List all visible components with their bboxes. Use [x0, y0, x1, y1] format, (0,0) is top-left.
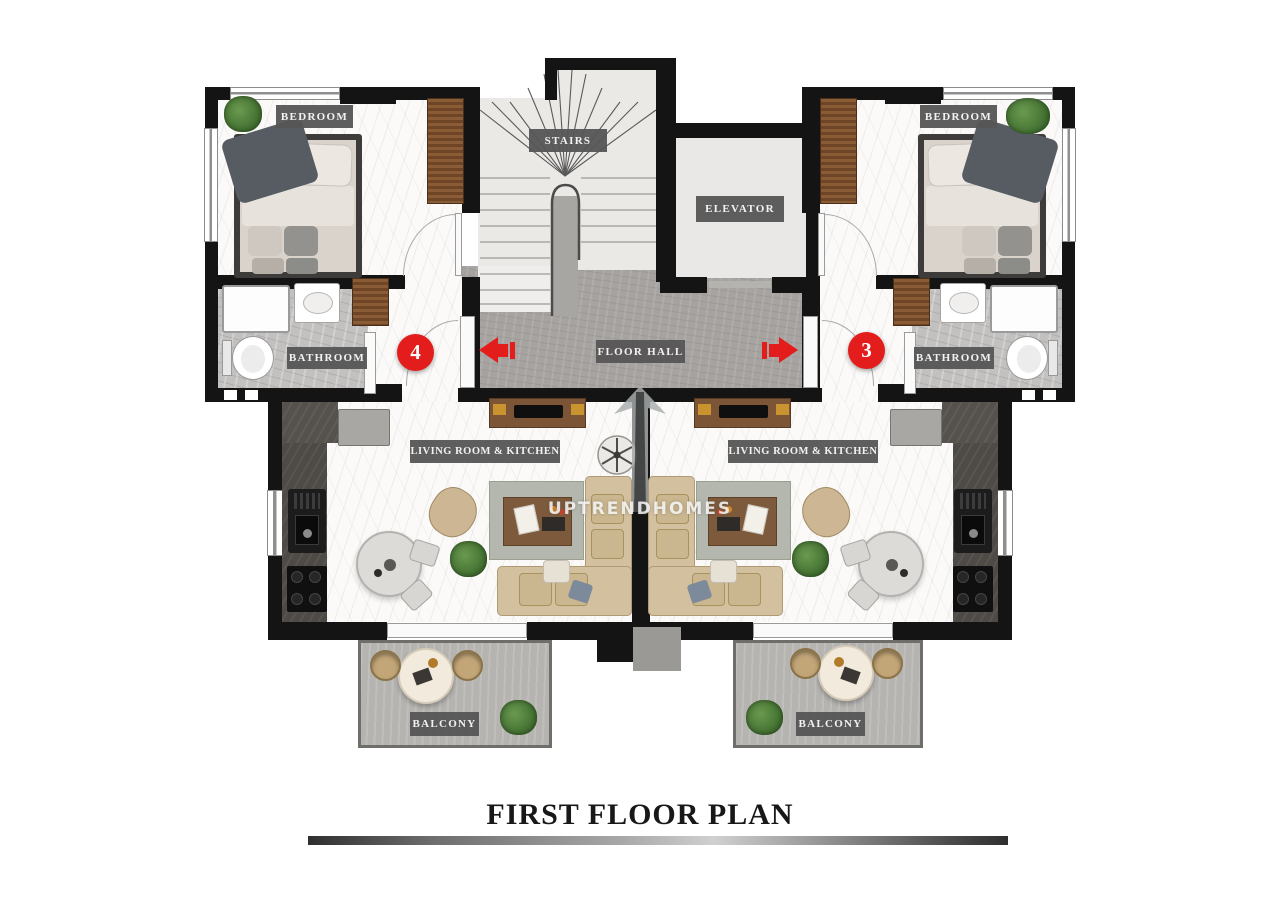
ottoman-right	[710, 560, 737, 583]
plant-bedroom-left	[224, 96, 262, 132]
stove-right	[953, 566, 993, 612]
sofa-cushion	[656, 529, 689, 559]
uptrend-logo-icon	[612, 384, 668, 516]
arrow-head	[479, 337, 498, 363]
bed-right	[918, 134, 1046, 278]
sink-right	[940, 283, 986, 323]
table-item	[834, 657, 844, 667]
entry-arrow-right-icon	[762, 337, 798, 364]
kitchen-counter-corner-left	[282, 402, 338, 443]
shower-left	[222, 285, 290, 333]
deco-box	[698, 404, 711, 415]
arrow-tail	[498, 344, 508, 357]
pillow-small	[998, 258, 1030, 274]
table-item	[428, 658, 438, 668]
wall-elevator-bottom-left	[660, 277, 707, 293]
kitchen-sink-left	[288, 489, 326, 553]
pillow-small	[252, 258, 284, 274]
label-living-left: LIVING ROOM & KITCHEN	[410, 440, 560, 463]
wall-bump-left	[545, 58, 557, 100]
floor-plan-canvas: BEDROOM BEDROOM STAIRS ELEVATOR FLOOR HA…	[0, 0, 1280, 904]
label-floor-hall: FLOOR HALL	[596, 340, 685, 363]
deco-box	[571, 404, 584, 415]
plant-living-left	[450, 541, 487, 577]
wall-bump-top	[545, 58, 668, 70]
wall-elevator-top	[656, 123, 820, 138]
kitchen-counter-corner-right	[942, 402, 998, 443]
page-title: FIRST FLOOR PLAN	[0, 798, 1280, 832]
table-deco	[900, 569, 908, 577]
pillow-small	[998, 226, 1032, 256]
title-underline	[308, 836, 1008, 845]
bowl	[1006, 336, 1048, 380]
balcony-table-left	[398, 648, 454, 704]
pillow-small	[284, 226, 318, 256]
arrow-bar	[510, 342, 515, 359]
plant-balcony-left	[500, 700, 537, 735]
faucet	[969, 529, 978, 538]
wall-bath-stub-right	[878, 384, 904, 402]
tv-screen	[514, 405, 563, 418]
balcony-chair	[872, 648, 903, 679]
window-kitchen-right	[997, 490, 1013, 556]
balcony-chair	[452, 650, 483, 681]
wall-niche	[1022, 390, 1035, 400]
balcony-chair	[790, 648, 821, 679]
plant-bedroom-right	[1006, 98, 1050, 134]
plant-balcony-right	[746, 700, 783, 735]
label-bathroom-right: BATHROOM	[914, 347, 994, 369]
toilet-left	[222, 336, 276, 380]
wall-elevator-bottom-right	[772, 277, 806, 293]
label-balcony-left: BALCONY	[410, 712, 479, 736]
pillow-small	[286, 258, 318, 274]
balcony-table-right	[818, 645, 874, 701]
entry-door-unit4	[460, 316, 475, 388]
arrow-tail	[769, 344, 779, 357]
elevator-door-sill	[709, 281, 771, 288]
entry-arrow-left-icon	[479, 337, 515, 364]
wall-bath-stub-left	[376, 384, 402, 402]
label-bedroom-right: BEDROOM	[920, 105, 997, 128]
stove-left	[287, 566, 327, 612]
window-bedroom-left-side	[204, 128, 218, 242]
unit-4-badge: 4	[397, 334, 434, 371]
entry-door-unit3	[803, 316, 818, 388]
stairs-treads-icon	[478, 58, 660, 316]
label-bedroom-left: BEDROOM	[276, 105, 353, 128]
unit-3-badge: 3	[848, 332, 885, 369]
bedroom-door-leaf-left	[455, 213, 462, 276]
table-deco	[886, 559, 898, 571]
label-balcony-right: BALCONY	[796, 712, 865, 736]
deco-box	[493, 404, 506, 415]
wall-top-left-block	[340, 87, 396, 104]
magazine	[513, 504, 539, 535]
dresser-left	[352, 278, 389, 326]
burner	[309, 593, 321, 605]
wardrobe-left	[427, 98, 464, 204]
balcony-door-left	[387, 623, 527, 638]
wardrobe-right	[820, 98, 857, 204]
table-deco	[374, 569, 382, 577]
balcony-door-right	[753, 623, 893, 638]
deco-box	[776, 404, 789, 415]
shower-right	[990, 285, 1058, 333]
drainboard	[960, 493, 986, 509]
wall-niche	[245, 390, 258, 400]
bowl	[232, 336, 274, 380]
kitchen-sink-right	[954, 489, 992, 553]
toilet-right	[1004, 336, 1058, 380]
wall-bottom-left	[268, 622, 387, 640]
pillar-between-balconies	[633, 627, 681, 671]
wall-inner-left-upper	[462, 87, 480, 213]
burner	[291, 593, 303, 605]
tv-unit-right	[694, 398, 791, 428]
burner	[957, 571, 969, 583]
tray	[717, 517, 740, 531]
bed-left	[234, 134, 362, 278]
plant-living-right	[792, 541, 829, 577]
table-deco	[384, 559, 396, 571]
label-bathroom-left: BATHROOM	[287, 347, 367, 369]
label-elevator: ELEVATOR	[696, 196, 784, 222]
label-stairs: STAIRS	[529, 129, 607, 152]
burner	[975, 593, 987, 605]
wall-niche	[224, 390, 237, 400]
tank	[222, 340, 232, 376]
basin	[303, 292, 333, 314]
label-living-right: LIVING ROOM & KITCHEN	[728, 440, 878, 463]
wall-stairs-elevator	[656, 58, 676, 282]
bowl-inner	[241, 345, 265, 373]
wall-bottom-right	[893, 622, 1012, 640]
magazine	[742, 504, 768, 535]
tray	[542, 517, 565, 531]
arrow-head	[779, 337, 798, 363]
burner	[291, 571, 303, 583]
wall-stub-between-balconies	[597, 622, 633, 662]
balcony-chair	[370, 650, 401, 681]
sofa-cushion	[591, 529, 624, 559]
window-kitchen-left	[267, 490, 283, 556]
watermark: UPTRENDHOMES	[540, 499, 740, 519]
arrow-bar	[762, 342, 767, 359]
burner	[309, 571, 321, 583]
pillow-small	[962, 226, 996, 256]
wall-niche	[1043, 390, 1056, 400]
wall-top-right-block	[885, 87, 941, 104]
burner	[957, 593, 969, 605]
fridge-right	[890, 409, 942, 446]
tv-screen	[719, 405, 768, 418]
drainboard	[294, 493, 320, 509]
sink-left	[294, 283, 340, 323]
tank	[1048, 340, 1058, 376]
tv-unit-left	[489, 398, 586, 428]
basin	[949, 292, 979, 314]
burner	[975, 571, 987, 583]
pillow-small	[248, 226, 282, 256]
faucet	[303, 529, 312, 538]
dresser-right	[893, 278, 930, 326]
table-item	[840, 666, 860, 684]
window-bedroom-right-side	[1062, 128, 1076, 242]
bowl-inner	[1017, 345, 1041, 373]
table-item	[412, 667, 432, 685]
pillow-small	[964, 258, 996, 274]
ottoman-left	[543, 560, 570, 583]
fridge-left	[338, 409, 390, 446]
